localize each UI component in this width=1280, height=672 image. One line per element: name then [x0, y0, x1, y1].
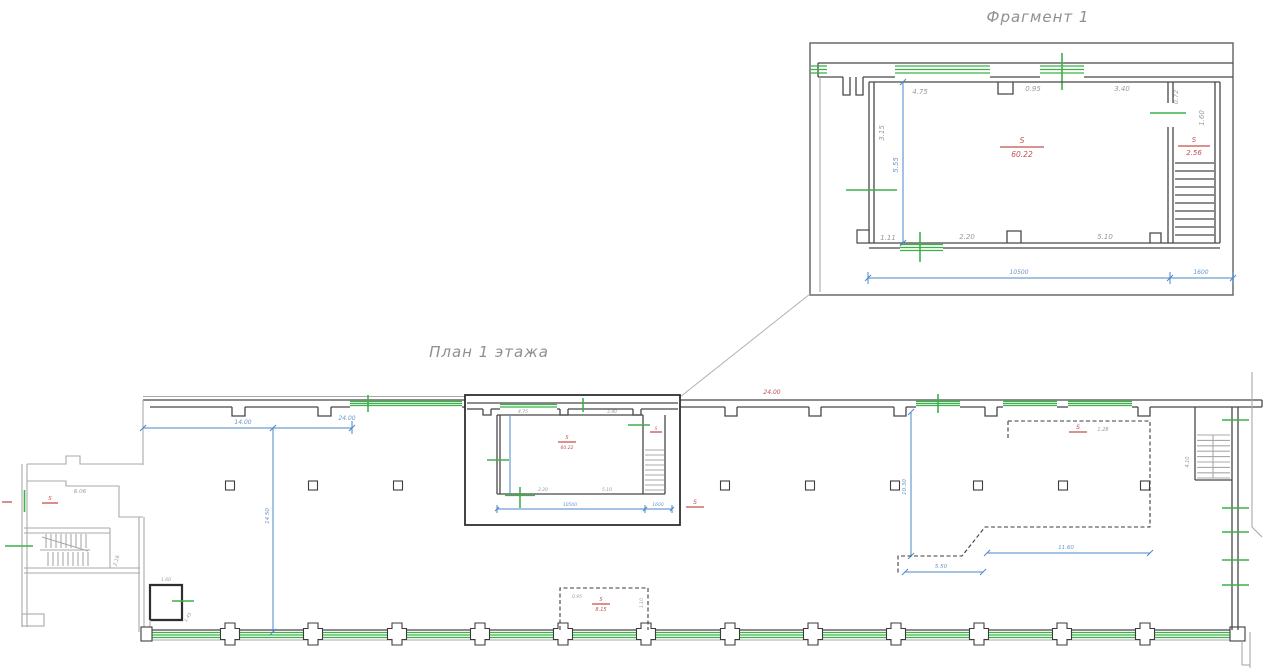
- plan-bottom-wall: [141, 623, 1245, 645]
- dim-text: 3.15: [878, 125, 886, 141]
- dim-text: 10.30: [902, 479, 908, 495]
- svg-text:11.60: 11.60: [1058, 545, 1074, 551]
- pilaster-cross: [721, 623, 740, 645]
- svg-text:2.56: 2.56: [1186, 149, 1202, 157]
- dim-text: 4.10: [1185, 456, 1191, 467]
- svg-text:S: S: [1076, 424, 1080, 431]
- svg-text:S: S: [655, 426, 658, 431]
- pilaster: [232, 407, 331, 416]
- pilaster-cross: [804, 623, 823, 645]
- plan-dim-top-left: 14.00 24.00: [140, 415, 356, 434]
- area-label-annex: S: [42, 496, 58, 503]
- dim-text: 4.75: [518, 409, 528, 415]
- dim-text: 0.95: [572, 594, 582, 600]
- plan-view: План 1 этажа 24.00: [2, 343, 1262, 668]
- pilaster-cross: [970, 623, 989, 645]
- area-label-hall: S: [686, 499, 704, 507]
- dim-text: 1.60: [161, 577, 171, 583]
- pilaster-cross: [554, 623, 573, 645]
- dim-text: 1.28: [1097, 427, 1108, 433]
- area-label-dashed: S: [1069, 424, 1087, 432]
- dim-text-red: 24.00: [763, 389, 780, 396]
- plan-top-wall-right: [680, 394, 1262, 416]
- dim-text: 24.00: [338, 415, 355, 422]
- callout-leader-line: [680, 294, 810, 397]
- plan-dim-dashed-small: 5.50: [902, 564, 986, 575]
- plan-dim-dashed-width: 11.60: [984, 545, 1153, 556]
- dim-text: 1.60: [1198, 110, 1206, 126]
- svg-text:60.22: 60.22: [1011, 150, 1033, 159]
- dim-text: 3.40: [1114, 85, 1130, 93]
- plan-title: План 1 этажа: [429, 343, 549, 361]
- annex-stairs: [40, 534, 90, 566]
- pilaster-cross: [1136, 623, 1155, 645]
- pilaster-cross: [304, 623, 323, 645]
- dim-text: 1600: [652, 502, 664, 508]
- svg-text:S: S: [693, 499, 697, 506]
- annex-outline: [27, 456, 143, 464]
- wall-corner: [141, 627, 152, 641]
- plan-top-wall-left: [143, 395, 465, 416]
- svg-text:5.50: 5.50: [935, 564, 948, 570]
- plan-dim-mid-vertical: 10.30: [902, 409, 914, 559]
- dim-text: 4.75: [912, 88, 928, 96]
- pilaster-block: [857, 230, 869, 243]
- dim-text: 14.00: [234, 419, 251, 426]
- svg-text:S: S: [599, 597, 603, 603]
- dim-text: 14.50: [265, 508, 271, 524]
- plan-annex: 6.06 2.16 S: [2, 400, 144, 632]
- fragment-title: Фрагмент 1: [987, 8, 1090, 26]
- pilaster-cross: [221, 623, 240, 645]
- dim-text: 1.10: [639, 598, 645, 608]
- plan-dim-left-vertical: 14.50: [265, 425, 276, 635]
- floor-plan-drawing: Фрагмент 1: [0, 0, 1280, 672]
- svg-text:S: S: [48, 496, 52, 502]
- dim-text: 10500: [1009, 269, 1028, 276]
- annex-foot: [22, 614, 44, 626]
- dim-text: 1.45: [183, 612, 193, 624]
- pilaster-cross: [1053, 623, 1072, 645]
- area-label-booth: S 8.15: [592, 597, 610, 613]
- dim-text: 1.11: [880, 234, 896, 242]
- dim-text: 2.16: [113, 555, 122, 567]
- dim-text: 5.55: [892, 157, 900, 173]
- dim-text: 0.95: [1025, 85, 1041, 93]
- pilaster-cross: [388, 623, 407, 645]
- dim-text: 5.10: [1097, 233, 1113, 241]
- dim-text: 2.20: [959, 233, 975, 241]
- svg-text:S: S: [1192, 136, 1197, 144]
- dim-text: 10500: [563, 502, 577, 508]
- pilaster-cross: [637, 623, 656, 645]
- pilaster-cross: [887, 623, 906, 645]
- plan-dashed-area: S 1.28 11.60 5.50: [898, 421, 1153, 575]
- annex-room-divider: [27, 481, 143, 517]
- dim-text: 5.10: [602, 487, 612, 493]
- svg-text:8.15: 8.15: [595, 607, 606, 613]
- dim-text: 0.72: [1172, 90, 1180, 104]
- dim-text: 1600: [1193, 269, 1208, 276]
- dim-text: 3.40: [607, 409, 617, 415]
- svg-text:60.22: 60.22: [561, 445, 574, 451]
- plan-vestibule: 1.60 1.45: [150, 577, 194, 632]
- plan-columns: [226, 481, 1150, 490]
- svg-text:S: S: [1020, 136, 1025, 145]
- plan-callout: S 60.22 S 4.75 3.40 2.20 5.10 10500 1600: [465, 395, 680, 525]
- plan-booth: S 8.15 0.95 1.10: [560, 588, 648, 630]
- dim-text: 6.06: [74, 489, 87, 495]
- plan-right-stairs: 4.10: [1185, 407, 1232, 480]
- dim-text: 2.20: [538, 487, 548, 493]
- fragment-view: Фрагмент 1: [810, 8, 1236, 295]
- plan-right-wall: [1222, 372, 1262, 668]
- pilaster-cross: [471, 623, 490, 645]
